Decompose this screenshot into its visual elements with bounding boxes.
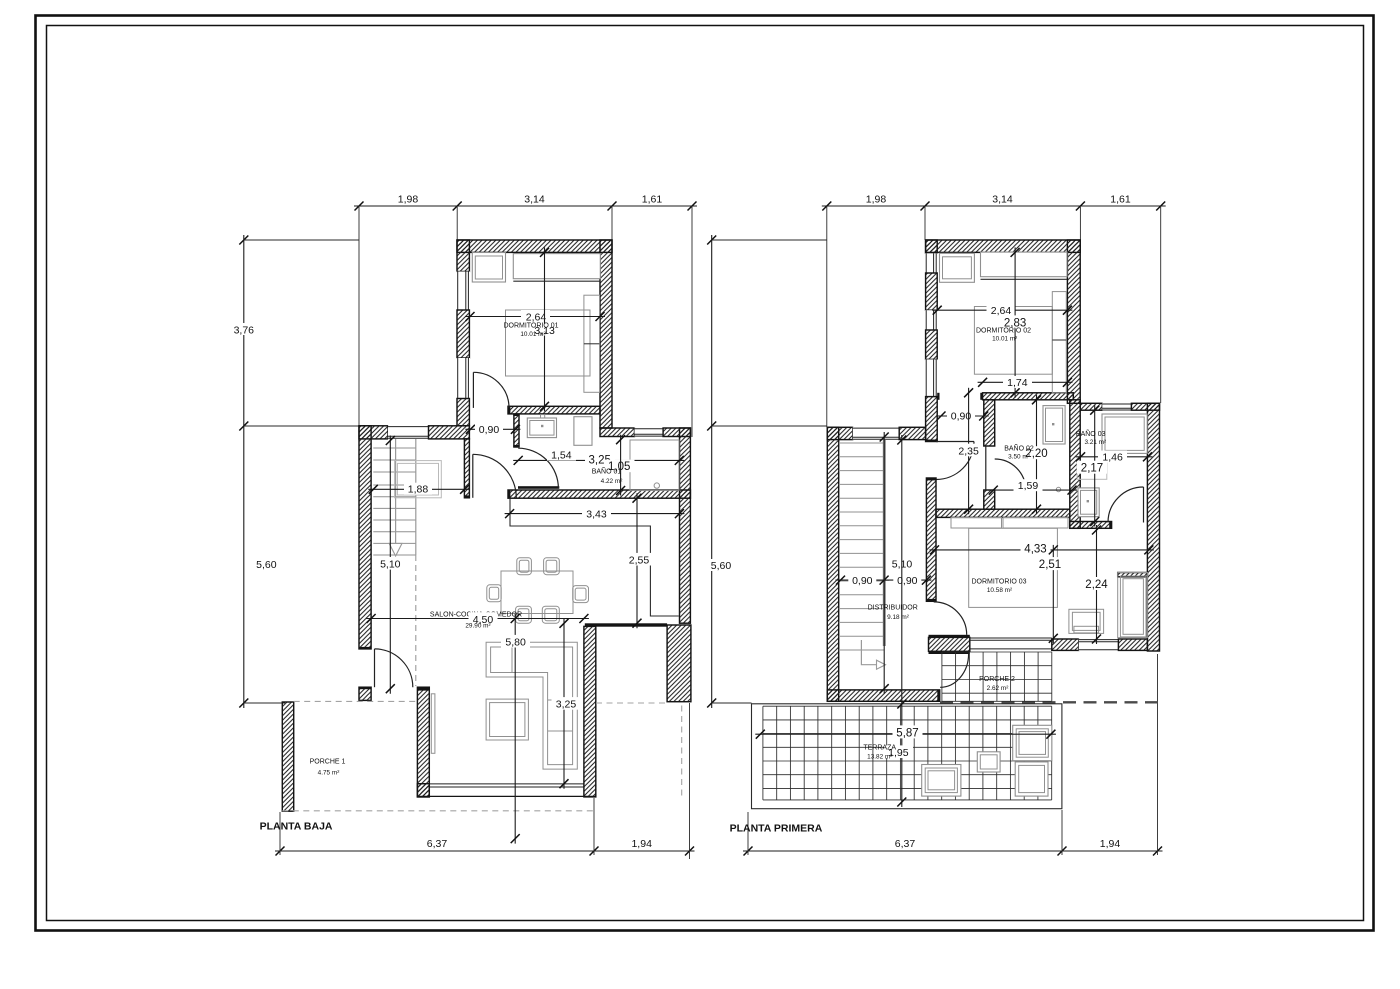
svg-text:BAÑO 03: BAÑO 03 [1076,429,1106,438]
svg-text:BAÑO 02: BAÑO 02 [1004,444,1034,453]
svg-text:3,25: 3,25 [556,699,577,711]
svg-text:BAÑO 01: BAÑO 01 [592,467,622,476]
svg-text:10.01 m²: 10.01 m² [520,331,545,338]
svg-text:DORMITORIO 03: DORMITORIO 03 [971,579,1026,586]
svg-text:6,37: 6,37 [895,838,916,850]
svg-text:5,60: 5,60 [711,560,732,572]
svg-text:1,54: 1,54 [551,450,572,462]
svg-text:1,98: 1,98 [866,194,887,206]
svg-text:2,51: 2,51 [1039,559,1061,571]
svg-text:TERRAZA: TERRAZA [863,745,896,752]
svg-text:1,74: 1,74 [1007,377,1028,389]
svg-text:0,90: 0,90 [897,575,918,587]
svg-text:10.01 m²: 10.01 m² [992,336,1017,343]
svg-text:PORCHE 1: PORCHE 1 [310,759,346,766]
svg-text:2,24: 2,24 [1085,579,1108,591]
svg-text:4.75 m²: 4.75 m² [318,770,340,777]
svg-text:3,43: 3,43 [586,508,607,520]
svg-text:4,33: 4,33 [1024,544,1046,556]
svg-text:29.90 m²: 29.90 m² [465,623,490,630]
svg-text:PORCHE 2: PORCHE 2 [979,676,1015,683]
svg-text:1,94: 1,94 [631,838,652,850]
svg-text:1,61: 1,61 [1110,194,1131,206]
svg-text:0,90: 0,90 [852,575,873,587]
svg-text:2,55: 2,55 [629,555,650,567]
svg-text:9.18 m²: 9.18 m² [887,614,909,621]
svg-text:10.58 m²: 10.58 m² [987,587,1012,594]
svg-text:PLANTA BAJA: PLANTA BAJA [260,821,333,833]
svg-text:1,59: 1,59 [1018,480,1039,492]
svg-text:5,87: 5,87 [896,727,918,739]
svg-text:PLANTA PRIMERA: PLANTA PRIMERA [730,823,823,835]
svg-text:DISTRIBUIDOR: DISTRIBUIDOR [868,605,918,612]
svg-text:2,17: 2,17 [1081,463,1103,475]
svg-text:5,10: 5,10 [380,559,401,571]
svg-text:3,76: 3,76 [234,325,255,337]
svg-text:0,90: 0,90 [479,424,500,436]
svg-text:1,88: 1,88 [408,484,429,496]
svg-text:13.82 m²: 13.82 m² [867,753,892,760]
svg-text:3,14: 3,14 [524,194,545,206]
svg-text:4.22 m²: 4.22 m² [601,478,623,485]
svg-text:3.50 m²: 3.50 m² [1008,454,1030,461]
svg-text:5,80: 5,80 [505,637,526,649]
svg-text:1,98: 1,98 [398,194,419,206]
svg-text:DORMITORIO 01: DORMITORIO 01 [503,323,558,330]
svg-text:2.62 m²: 2.62 m² [987,685,1009,692]
svg-text:3,14: 3,14 [992,194,1013,206]
svg-text:2,64: 2,64 [991,305,1012,317]
svg-text:1,61: 1,61 [642,194,663,206]
svg-text:1,94: 1,94 [1100,838,1121,850]
svg-text:6,37: 6,37 [427,838,448,850]
svg-text:2,35: 2,35 [958,445,979,457]
svg-text:3.21 m²: 3.21 m² [1084,439,1106,446]
svg-text:5,60: 5,60 [256,559,277,571]
svg-text:DORMITORIO 02: DORMITORIO 02 [976,328,1031,335]
